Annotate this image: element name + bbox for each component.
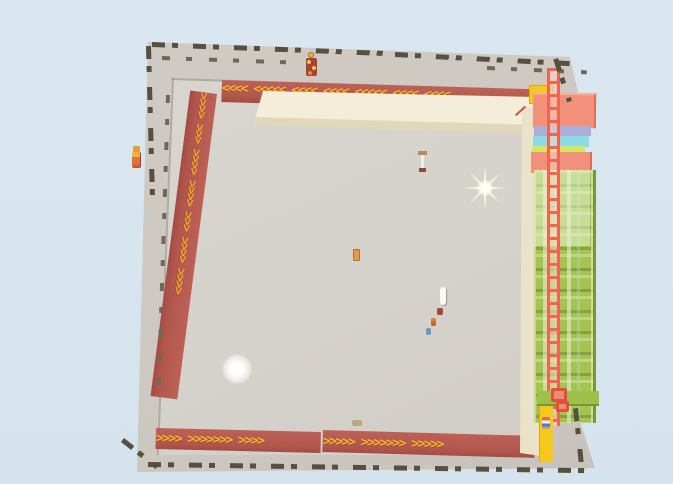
post-stem <box>421 155 424 168</box>
yellow-strip-bottom-right <box>539 406 553 462</box>
chevrons-right-pointing: >>>> >>>>>>> >>>> <box>156 431 264 449</box>
character-body <box>306 58 317 76</box>
star-sparkle[interactable] <box>460 163 510 213</box>
bottom-track-item[interactable] <box>352 420 362 426</box>
wall-character-top[interactable] <box>302 52 320 80</box>
red-chain-ladder <box>547 68 560 426</box>
orange-item[interactable] <box>353 249 360 261</box>
figure-outside-left[interactable] <box>131 146 142 169</box>
player-dot-blue[interactable] <box>426 328 431 335</box>
red-block-lower <box>556 401 569 412</box>
game-viewport[interactable]: <<<< <<<<< <<<< <<<< <<<<< <<<< <<<< >>>… <box>0 0 673 484</box>
post-marker <box>418 151 428 173</box>
green-grandstand-upper-tier <box>534 170 590 246</box>
glow-orb[interactable] <box>222 354 252 384</box>
post-base <box>419 168 426 172</box>
player-dot-red[interactable] <box>437 308 443 315</box>
periwinkle-stripe <box>534 126 591 136</box>
player-dot-orange[interactable] <box>431 318 436 326</box>
chevrons-right-pointing: >>>>> >>>>>>> >>>>> <box>322 433 443 451</box>
mini-figure-bottom-right[interactable] <box>542 417 550 429</box>
red-block-upper <box>551 388 567 402</box>
white-pillar <box>440 287 446 305</box>
boost-strip-bottom-1: >>>> >>>>>>> >>>> <box>155 428 320 453</box>
figure-body <box>132 152 141 168</box>
sparkle-core <box>477 180 493 196</box>
salmon-block-upper <box>533 93 596 129</box>
